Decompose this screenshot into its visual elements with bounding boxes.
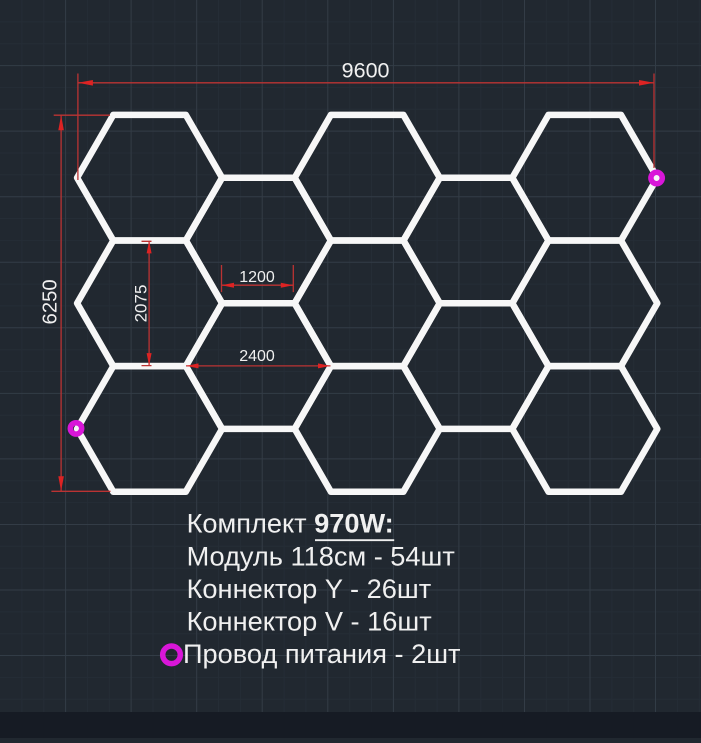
svg-text:Модуль 118см - 54шт: Модуль 118см - 54шт xyxy=(187,540,455,571)
svg-text:Комплект 970W:: Комплект 970W: xyxy=(187,508,394,539)
svg-text:2075: 2075 xyxy=(132,285,151,323)
svg-text:9600: 9600 xyxy=(342,58,390,82)
svg-text:6250: 6250 xyxy=(40,279,62,324)
svg-text:Коннектор Y - 26шт: Коннектор Y - 26шт xyxy=(187,573,432,604)
svg-text:Провод питания - 2шт: Провод питания - 2шт xyxy=(183,638,461,669)
svg-text:Коннектор V - 16шт: Коннектор V - 16шт xyxy=(187,606,432,637)
svg-text:1200: 1200 xyxy=(239,269,275,286)
svg-text:2400: 2400 xyxy=(239,348,275,365)
